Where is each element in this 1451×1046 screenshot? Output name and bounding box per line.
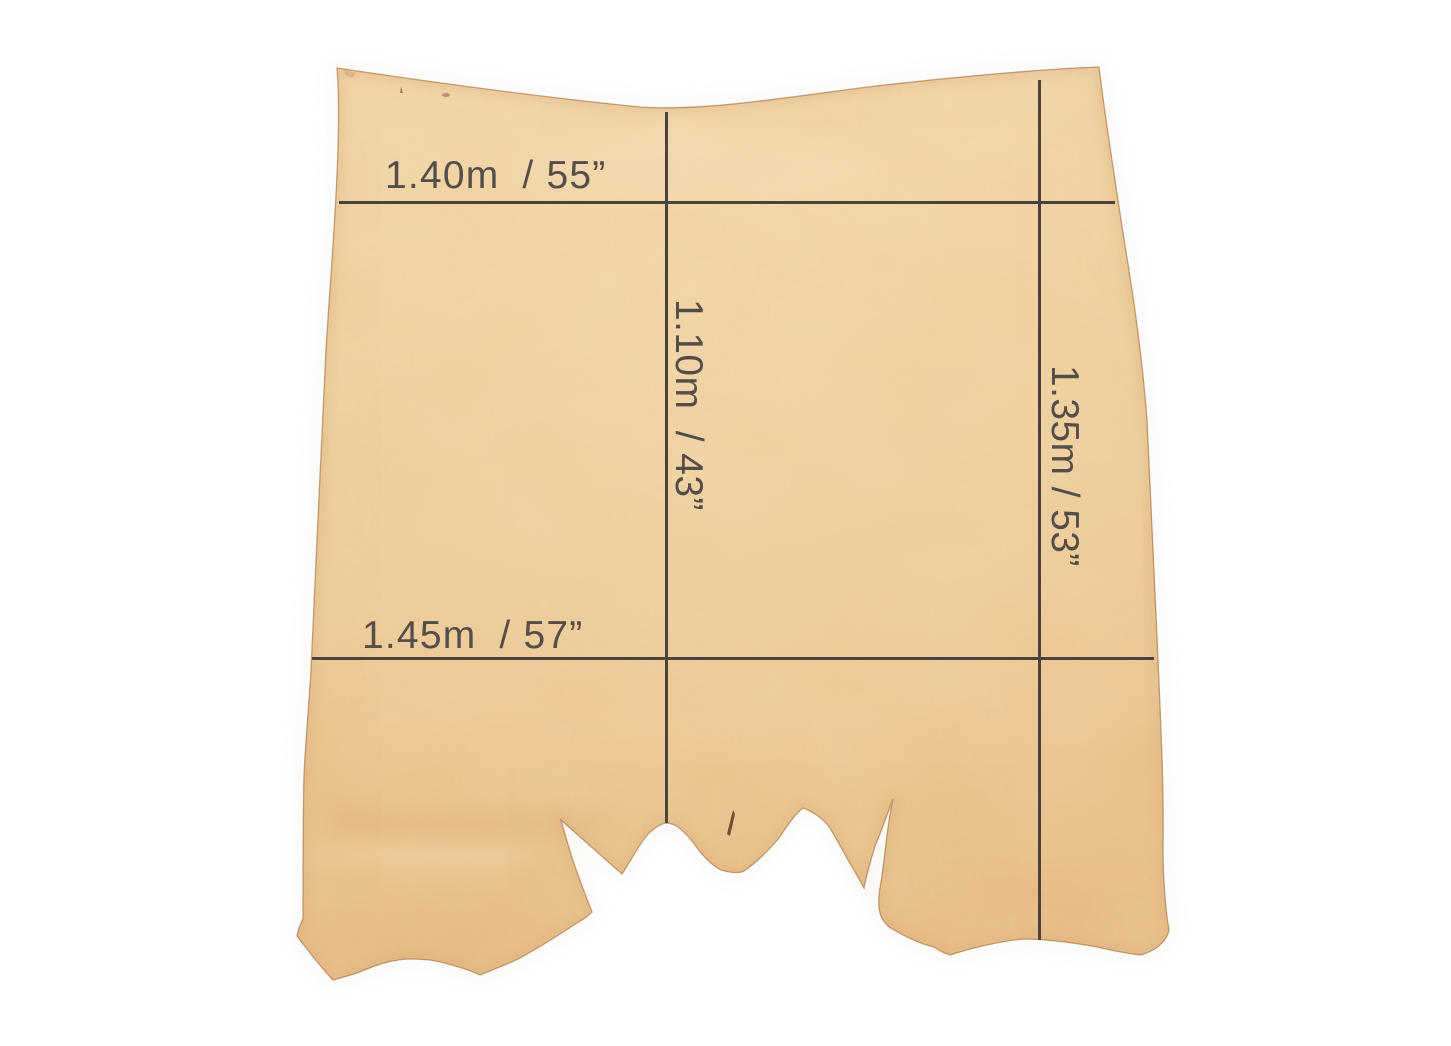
svg-text:1.40m / 55”: 1.40m / 55” [385,154,606,197]
svg-text:1.35m / 53”: 1.35m / 53” [1043,365,1086,567]
svg-text:1.45m / 57”: 1.45m / 57” [362,614,583,657]
svg-text:1.10m / 43”: 1.10m / 43” [667,299,710,511]
